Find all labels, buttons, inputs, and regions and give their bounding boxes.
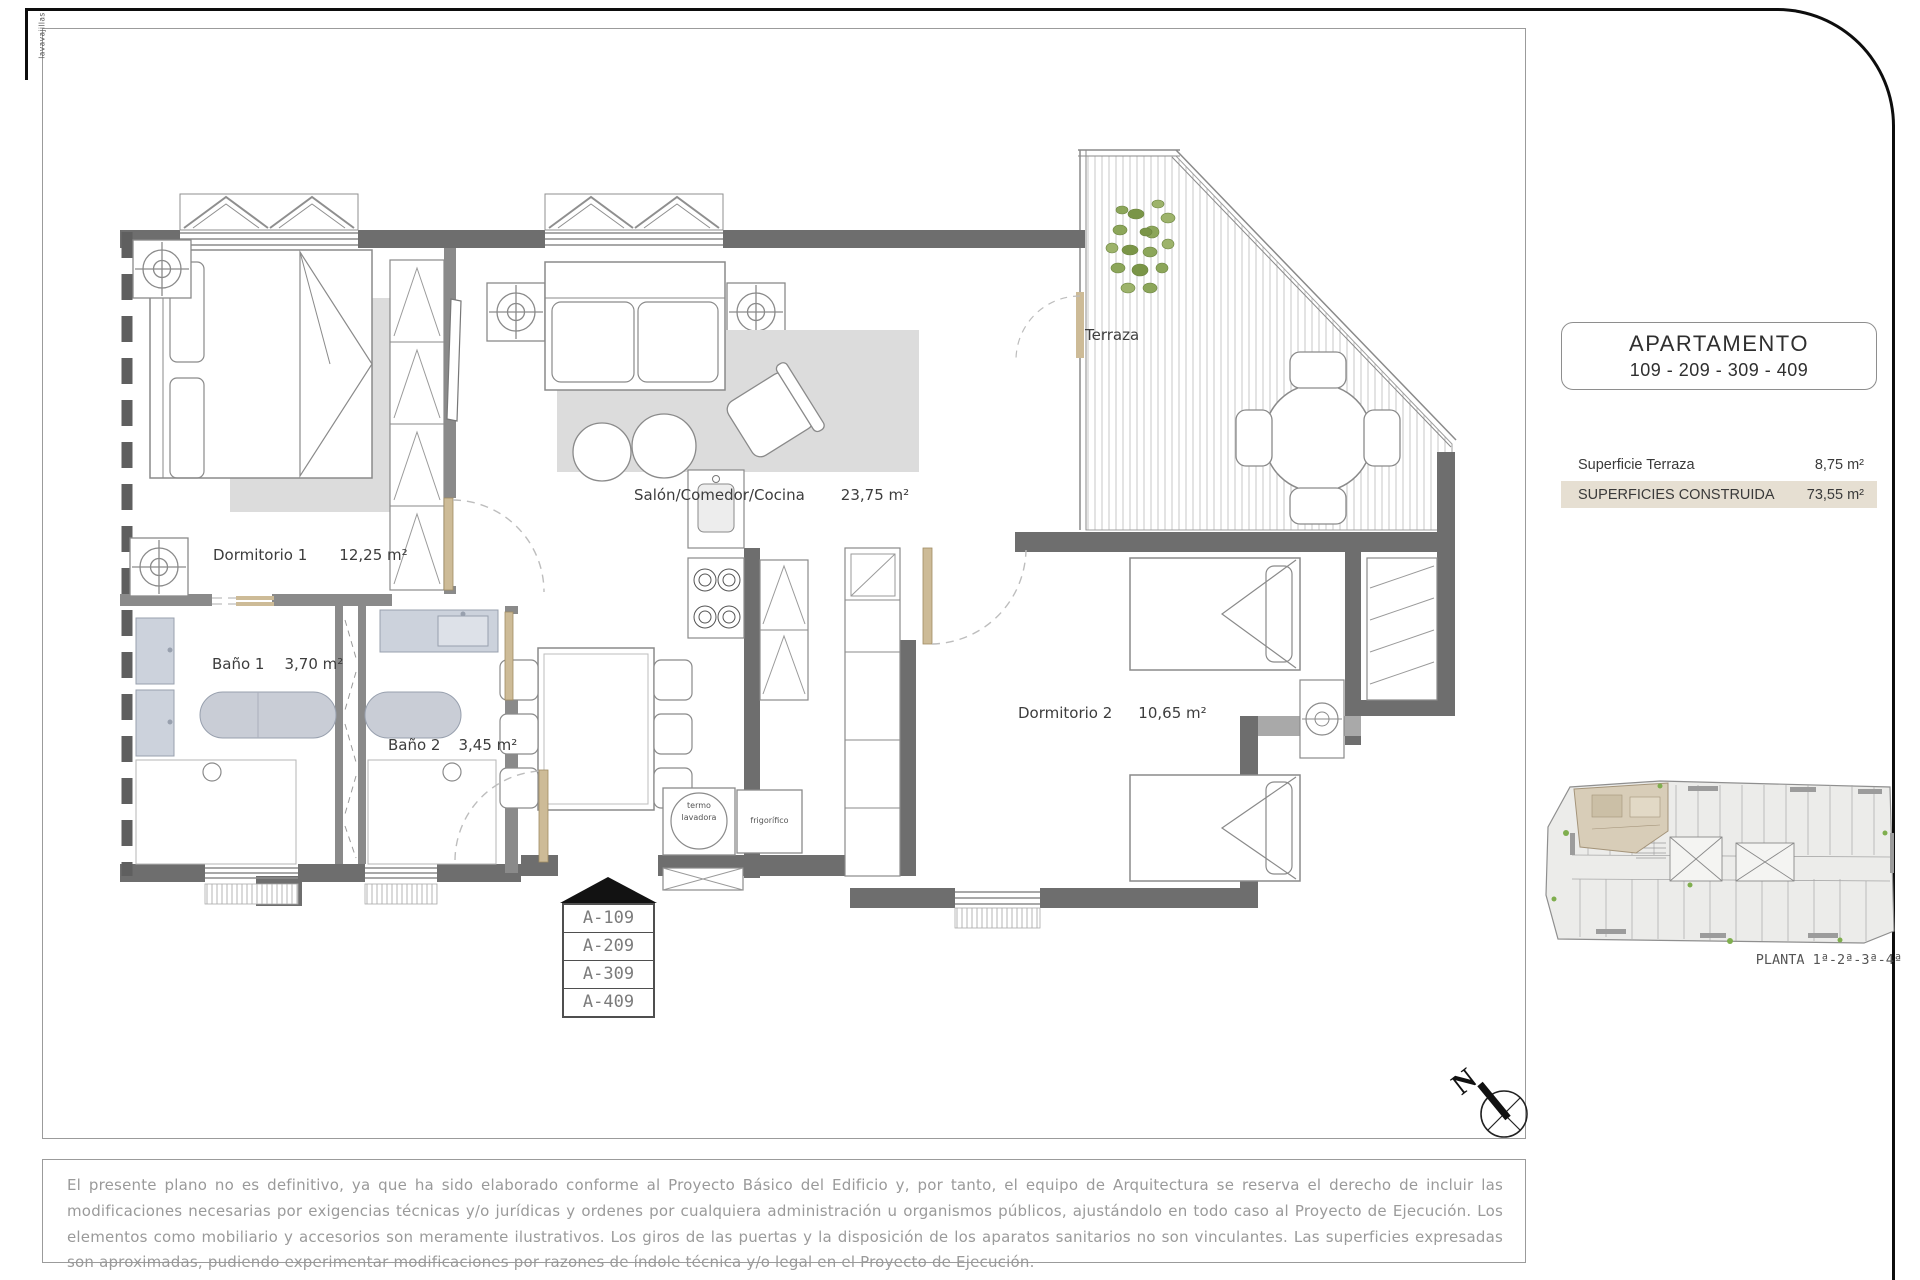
- unit-row: A-109: [564, 905, 653, 932]
- label-bedroom-1: Dormitorio 1 12,25 m²: [213, 546, 408, 564]
- surface-row-built: SUPERFICIES CONSTRUIDA 73,55 m²: [1561, 481, 1877, 508]
- surface-value: 73,55 m²: [1807, 487, 1864, 503]
- disclaimer-box: El presente plano no es definitivo, ya q…: [42, 1159, 1526, 1263]
- room-name: Dormitorio 2: [1018, 704, 1112, 722]
- apartment-numbers: 109 - 209 - 309 - 409: [1630, 360, 1809, 381]
- floor-plan-drawing: [42, 28, 1526, 1139]
- unit-row: A-209: [564, 932, 653, 960]
- label-terrace: Terraza: [1085, 326, 1139, 344]
- key-plan-caption: PLANTA 1ª-2ª-3ª-4ª: [1540, 952, 1902, 968]
- shutter-symbols: [180, 194, 723, 230]
- vent-shaft: [345, 620, 356, 858]
- disclaimer-text: El presente plano no es definitivo, ya q…: [43, 1160, 1525, 1276]
- bedroom1-furniture: [150, 250, 444, 590]
- surface-label: SUPERFICIES CONSTRUIDA: [1578, 487, 1775, 503]
- label-fridge: frigorífico: [737, 815, 802, 827]
- label-living-room: Salón/Comedor/Cocina 23,75 m²: [634, 486, 909, 504]
- label-bedroom-2: Dormitorio 2 10,65 m²: [1018, 704, 1207, 722]
- room-area: 12,25 m²: [339, 546, 407, 564]
- surface-row-terrace: Superficie Terraza 8,75 m²: [1561, 451, 1877, 478]
- room-area: 10,65 m²: [1138, 704, 1206, 722]
- north-label: N: [1448, 1062, 1483, 1102]
- plan-sheet: Salón/Comedor/Cocina 23,75 m² Dormitorio…: [0, 0, 1920, 1280]
- room-area: 3,45 m²: [458, 736, 517, 754]
- surface-table: Superficie Terraza 8,75 m² SUPERFICIES C…: [1561, 451, 1877, 508]
- surface-label: Superficie Terraza: [1578, 457, 1695, 473]
- label-bathroom-2: Baño 2 3,45 m²: [388, 736, 517, 754]
- key-plan: [1540, 773, 1902, 960]
- unit-row: A-309: [564, 960, 653, 988]
- surface-value: 8,75 m²: [1815, 457, 1864, 473]
- sheet-border-left: [25, 8, 28, 80]
- north-arrow: N: [1448, 1056, 1540, 1148]
- unit-stack-table: A-109 A-209 A-309 A-409: [562, 903, 655, 1018]
- room-name: Baño 2: [388, 736, 440, 754]
- room-name: Dormitorio 1: [213, 546, 307, 564]
- room-name: Terraza: [1085, 326, 1139, 344]
- apartment-title: APARTAMENTO: [1629, 331, 1809, 357]
- label-washer: termo lavadora: [663, 800, 735, 824]
- unit-row: A-409: [564, 988, 653, 1016]
- entrance-arrow: [560, 877, 657, 903]
- kitchen: [663, 470, 900, 890]
- room-area: 3,70 m²: [284, 655, 343, 673]
- room-name: Salón/Comedor/Cocina: [634, 486, 805, 504]
- label-bathroom-1: Baño 1 3,70 m²: [212, 655, 343, 673]
- apartment-title-box: APARTAMENTO 109 - 209 - 309 - 409: [1561, 322, 1877, 390]
- room-name: Baño 1: [212, 655, 264, 673]
- room-area: 23,75 m²: [841, 486, 909, 504]
